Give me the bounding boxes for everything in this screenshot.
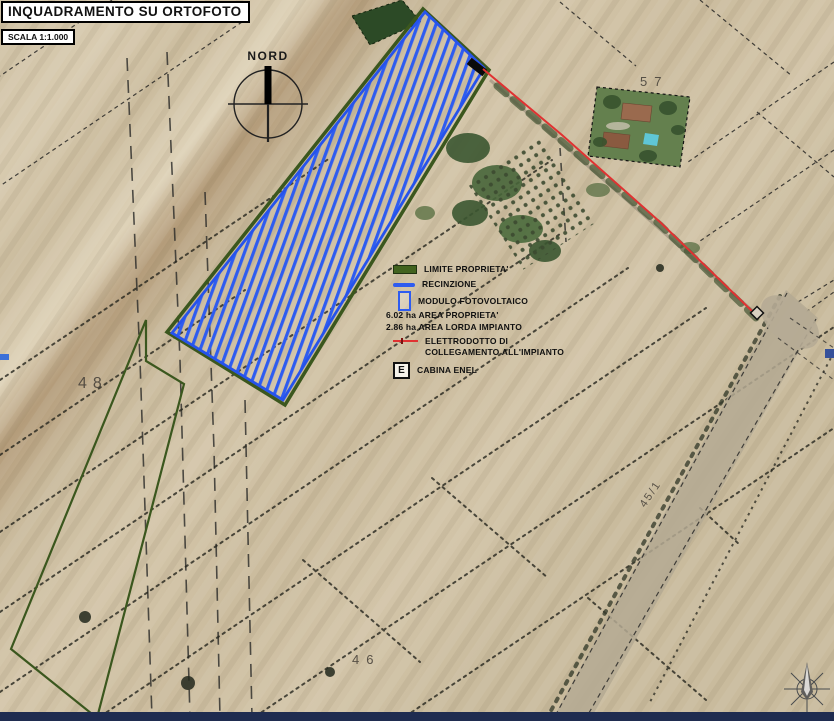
- area-lorda-text: 2.86 ha AREA LORDA IMPIANTO: [386, 322, 522, 332]
- house-roof: [621, 103, 652, 122]
- map-title: INQUADRAMENTO SU ORTOFOTO: [1, 1, 250, 23]
- limite-proprieta-swatch: [393, 265, 417, 274]
- elettrodotto-label: ELETTRODOTTO DICOLLEGAMENTO ALL'IMPIANTO: [425, 336, 564, 358]
- north-label: NORD: [247, 49, 288, 63]
- parcel-57: 57: [640, 74, 668, 89]
- farmhouse-plot: [588, 87, 690, 167]
- limite-proprieta-label: LIMITE PROPRIETA': [424, 264, 509, 275]
- legend-row-cabina: E CABINA ENEL: [393, 362, 477, 379]
- legend-row-recinzione: RECINZIONE: [393, 279, 476, 290]
- elettrodotto-tick: [401, 338, 403, 344]
- cabina-enel-symbol: E: [393, 362, 410, 379]
- legend-row-limite: LIMITE PROPRIETA': [393, 264, 509, 275]
- modulo-fotovoltaico-label: MODULO FOTOVOLTAICO: [418, 296, 528, 307]
- area-proprieta-text: 6.02 ha AREA PROPRIETA': [386, 310, 499, 320]
- modulo-fotovoltaico-swatch: [398, 291, 411, 311]
- parcel-46: 46: [352, 652, 380, 667]
- edge-marker-left: [0, 354, 9, 360]
- recinzione-label: RECINZIONE: [422, 279, 476, 290]
- elettrodotto-swatch: [393, 340, 418, 342]
- bottom-edge-strip: [0, 712, 834, 721]
- swimming-pool: [643, 133, 659, 146]
- cabina-enel-label: CABINA ENEL: [417, 365, 477, 376]
- scale-label: SCALA 1:1.000: [1, 29, 75, 45]
- recinzione-swatch: [393, 283, 415, 287]
- ortophoto-map-sheet: 48 57 46 45/1 NORD INQUADRAMENTO SU ORTO…: [0, 0, 834, 721]
- legend-row-elettrodotto: ELETTRODOTTO DICOLLEGAMENTO ALL'IMPIANTO: [393, 336, 564, 358]
- edge-marker-right: [825, 349, 834, 358]
- ortho-map: 48 57 46 45/1 NORD: [0, 0, 834, 721]
- legend-row-modulo: MODULO FOTOVOLTAICO: [393, 291, 528, 311]
- parcel-48: 48: [78, 375, 108, 392]
